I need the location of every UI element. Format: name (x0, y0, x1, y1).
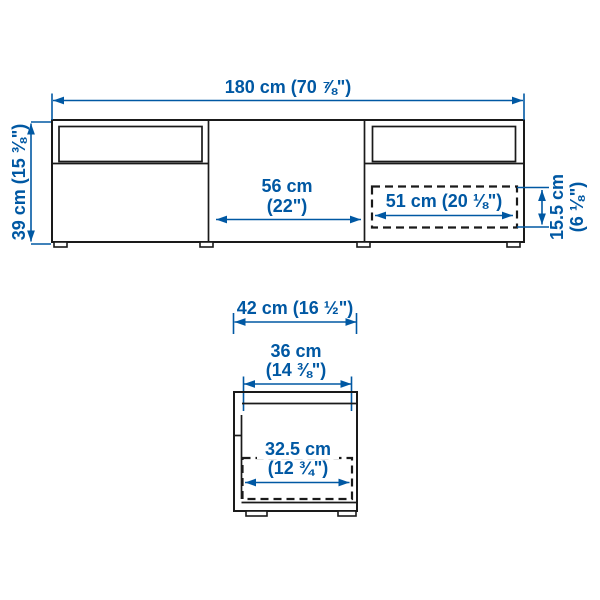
dim-overall-width: 180 cm (70 ⅞") (52, 77, 524, 120)
shelf-opening-right (373, 127, 516, 162)
side-foot-left (246, 511, 267, 516)
dim-drawer-inner-depth: 32.5 cm (12 ¾") (245, 439, 350, 483)
drawer-inner-depth-label-line2: (12 ¾") (268, 458, 329, 478)
drawer-inner-depth-label-line1: 32.5 cm (265, 439, 331, 459)
top-inner-depth-label-line1: 36 cm (270, 341, 321, 361)
drawer-inner-height-label-line2: (6 ⅛") (567, 182, 587, 233)
dim-drawer-inner-width: 51 cm (20 ⅛") (375, 191, 513, 216)
front-foot-1 (54, 242, 67, 247)
front-foot-2 (200, 242, 213, 247)
overall-depth-label: 42 cm (16 ½") (237, 298, 354, 318)
dim-overall-depth: 42 cm (16 ½") (234, 298, 357, 334)
dimension-diagram-canvas: 180 cm (70 ⅞") 39 cm (15 ⅜") 56 cm (22") (0, 0, 600, 600)
dim-drawer-inner-height: 15.5 cm (6 ⅛") (517, 174, 587, 240)
shelf-opening-left (59, 127, 202, 162)
front-foot-3 (357, 242, 370, 247)
front-view: 180 cm (70 ⅞") 39 cm (15 ⅜") 56 cm (22") (9, 77, 587, 247)
furniture-dimension-diagram: 180 cm (70 ⅞") 39 cm (15 ⅜") 56 cm (22") (0, 0, 600, 600)
front-foot-4 (507, 242, 520, 247)
dim-overall-height: 39 cm (15 ⅜") (9, 122, 51, 244)
side-view: 42 cm (16 ½") 36 cm (14 ⅜") (234, 298, 358, 516)
center-opening-width-label-line1: 56 cm (261, 176, 312, 196)
overall-height-label: 39 cm (15 ⅜") (9, 124, 29, 241)
drawer-inner-width-label: 51 cm (20 ⅛") (386, 191, 503, 211)
drawer-inner-height-label-line1: 15.5 cm (547, 174, 567, 240)
top-inner-depth-label-line2: (14 ⅜") (266, 360, 327, 380)
center-opening-width-label-line2: (22") (267, 196, 308, 216)
dim-top-inner-depth: 36 cm (14 ⅜") (244, 341, 352, 411)
overall-width-label: 180 cm (70 ⅞") (225, 77, 352, 97)
dim-center-opening-width: 56 cm (22") (216, 176, 361, 220)
side-foot-right (338, 511, 356, 516)
